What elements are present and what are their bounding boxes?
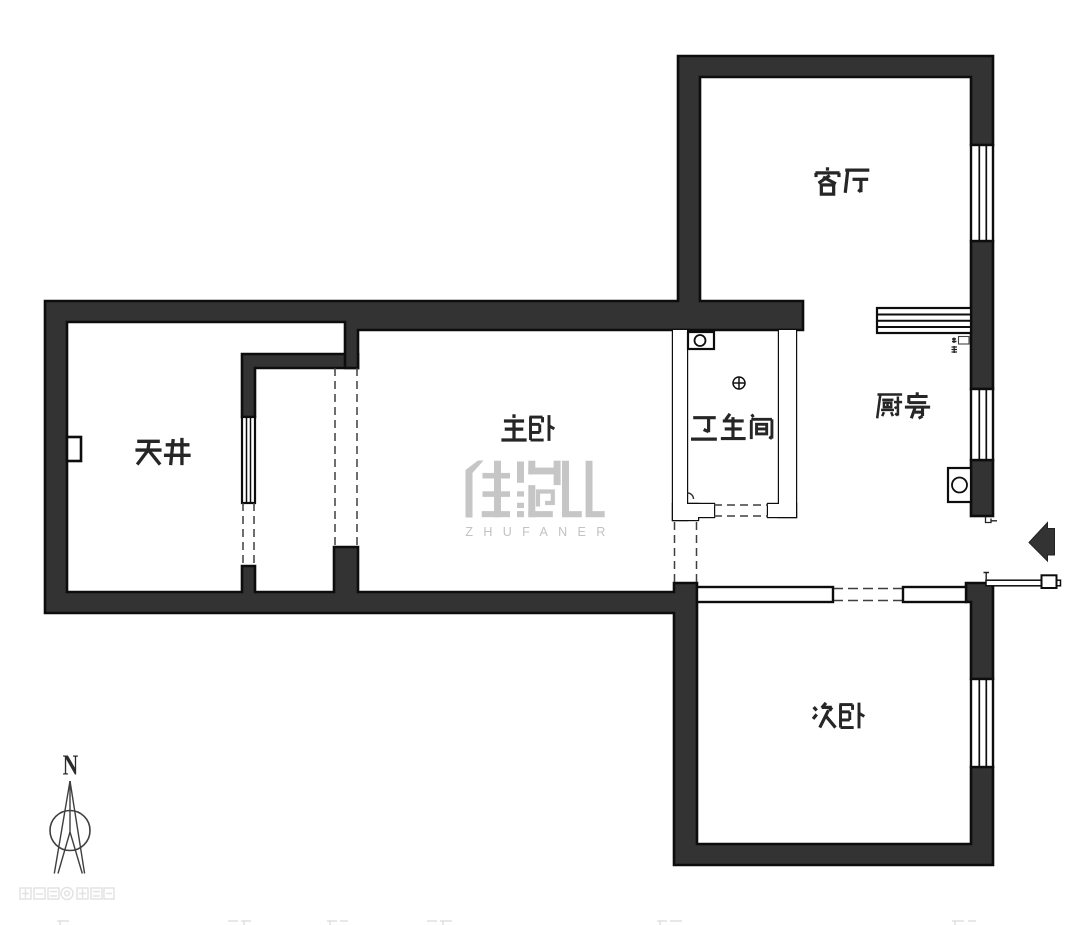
svg-text:ZHUFANER: ZHUFANER xyxy=(465,525,615,539)
svg-text:N: N xyxy=(63,750,79,782)
